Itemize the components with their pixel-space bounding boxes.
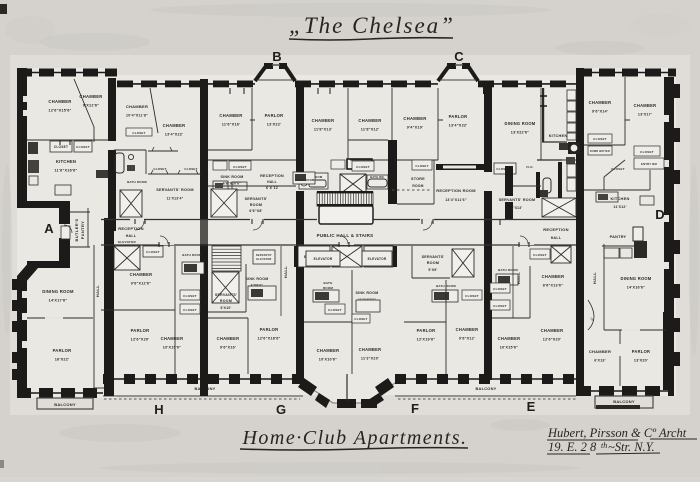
svg-text:SINK ROOM: SINK ROOM (355, 291, 378, 295)
svg-text:14'X16'6": 14'X16'6" (627, 286, 645, 290)
svg-text:13'4"X11'6": 13'4"X11'6" (445, 198, 467, 202)
svg-text:BATH ROOM: BATH ROOM (127, 180, 147, 184)
svg-text:ROOM: ROOM (250, 203, 262, 207)
svg-text:CHAMBER: CHAMBER (403, 116, 426, 121)
svg-text:CHAMBER: CHAMBER (79, 94, 102, 99)
svg-text:SINK ROOM: SINK ROOM (220, 175, 243, 179)
svg-text:6'X10': 6'X10' (220, 306, 231, 310)
svg-text:CHAMBER: CHAMBER (219, 113, 242, 118)
svg-text:CHAMBER: CHAMBER (217, 336, 240, 341)
svg-text:CLOSET: CLOSET (356, 165, 370, 169)
svg-text:12'6"X20': 12'6"X20' (543, 338, 561, 342)
svg-text:PARLOR: PARLOR (131, 328, 150, 333)
svg-text:CLOSET: CLOSET (54, 145, 68, 149)
svg-text:H: H (154, 402, 163, 417)
svg-text:HALL: HALL (126, 234, 137, 238)
svg-text:ROOM: ROOM (412, 184, 423, 188)
svg-text:CLOSET: CLOSET (493, 287, 507, 291)
svg-text:PANTRY: PANTRY (610, 235, 627, 239)
svg-text:12'6"X20': 12'6"X20' (131, 338, 150, 342)
svg-text:BATH: BATH (323, 281, 332, 285)
svg-text:7'X13': 7'X13' (512, 206, 523, 210)
svg-text:CHAMBER: CHAMBER (161, 336, 184, 341)
svg-text:CLOSET: CLOSET (146, 250, 160, 254)
svg-text:BALCONY: BALCONY (613, 399, 635, 404)
svg-text:CHAMBER: CHAMBER (589, 100, 612, 105)
svg-text:CHAMBER: CHAMBER (541, 328, 564, 333)
svg-text:ELEVATOR: ELEVATOR (118, 240, 136, 244)
svg-text:6 X 12: 6 X 12 (266, 186, 278, 190)
svg-text:12'6"X18'6": 12'6"X18'6" (257, 337, 280, 341)
svg-text:ROOM: ROOM (220, 299, 232, 303)
svg-text:CLOSET: CLOSET (593, 137, 607, 141)
svg-text:RECEPTION: RECEPTION (543, 227, 569, 232)
svg-text:13'X17': 13'X17' (638, 113, 652, 117)
svg-text:HALL: HALL (592, 272, 597, 284)
svg-text:5'X9': 5'X9' (428, 268, 437, 272)
svg-text:8'6"X13'6": 8'6"X13'6" (543, 284, 563, 288)
svg-text:KITCHEN: KITCHEN (56, 159, 76, 164)
svg-text:th: th (601, 441, 607, 450)
svg-text:ROOM: ROOM (323, 286, 334, 290)
svg-text:CHAMBER: CHAMBER (48, 99, 71, 104)
svg-text:9'X12'6": 9'X12'6" (83, 104, 99, 108)
svg-text:CHAMBER: CHAMBER (312, 118, 335, 123)
svg-text:BATH RM: BATH RM (370, 175, 384, 179)
svg-text:CHAMBER: CHAMBER (589, 349, 611, 354)
svg-text:19. E. 2 8: 19. E. 2 8 (548, 440, 597, 454)
svg-text:11'6"X16'6": 11'6"X16'6" (55, 169, 78, 173)
svg-text:13'X22'6": 13'X22'6" (511, 131, 529, 135)
svg-text:F: F (411, 401, 419, 416)
svg-text:6'6"X8': 6'6"X8' (249, 209, 262, 213)
svg-text:~Str. N.Y.: ~Str. N.Y. (608, 440, 655, 454)
svg-text:KITCHEN: KITCHEN (549, 134, 568, 138)
svg-text:11'X12': 11'X12' (613, 205, 626, 209)
svg-text:SERVANTS': SERVANTS' (256, 254, 272, 257)
svg-text:HALL: HALL (267, 180, 277, 184)
svg-text:HALL: HALL (95, 285, 100, 297)
svg-text:CHAMBER: CHAMBER (163, 123, 186, 128)
svg-text:CLOSET: CLOSET (328, 308, 342, 312)
svg-text:CLOSET: CLOSET (153, 167, 166, 171)
svg-text:CLOSET: CLOSET (611, 167, 625, 171)
svg-text:HALL: HALL (516, 272, 521, 284)
svg-text:CHAMBER: CHAMBER (359, 347, 382, 352)
svg-text:DINING ROOM: DINING ROOM (42, 289, 74, 294)
svg-text:13'4"X22': 13'4"X22' (449, 124, 468, 128)
svg-text:ENTRY RM: ENTRY RM (641, 162, 657, 166)
svg-text:9'6"X16': 9'6"X16' (220, 346, 236, 350)
svg-text:E: E (527, 399, 536, 414)
svg-text:DUMB WAITER: DUMB WAITER (590, 150, 610, 153)
svg-text:11'3"X20': 11'3"X20' (361, 357, 379, 361)
svg-text:CLOSET: CLOSET (465, 294, 479, 298)
svg-text:C: C (454, 49, 464, 64)
svg-text:DINING ROOM: DINING ROOM (505, 121, 536, 126)
svg-text:B: B (272, 49, 281, 64)
svg-text:SERVANTS': SERVANTS' (245, 197, 268, 201)
svg-text:CLOSET: CLOSET (76, 145, 90, 149)
svg-text:SERVANTS' ROOM: SERVANTS' ROOM (499, 198, 536, 202)
svg-text:9'6"X14': 9'6"X14' (592, 110, 608, 114)
svg-text:KITCHEN: KITCHEN (610, 196, 629, 201)
svg-text:12'6"X15'6": 12'6"X15'6" (48, 109, 71, 113)
svg-text:SERVANTS' ROOM: SERVANTS' ROOM (156, 188, 194, 192)
svg-text:CLOSET: CLOSET (533, 253, 547, 257)
svg-text:CLOSET: CLOSET (183, 308, 197, 312)
svg-text:ROOM: ROOM (427, 261, 439, 265)
svg-text:11'6"X16': 11'6"X16' (222, 123, 241, 127)
svg-text:BALCONY: BALCONY (54, 402, 76, 407)
svg-text:D: D (655, 207, 664, 222)
svg-text:CHAMBER: CHAMBER (542, 274, 565, 279)
svg-text:PARLOR: PARLOR (260, 327, 279, 332)
svg-text:PANTRY: PANTRY (80, 221, 85, 239)
svg-text:14'X17'6": 14'X17'6" (49, 299, 68, 303)
svg-text:„The Chelsea”: „The Chelsea” (289, 13, 455, 38)
svg-text:BALCONY: BALCONY (476, 386, 497, 391)
svg-text:A: A (44, 221, 54, 236)
svg-text:CLOSET: CLOSET (493, 304, 507, 308)
svg-text:10'X15'6": 10'X15'6" (500, 346, 518, 350)
svg-text:CLOSET: CLOSET (184, 167, 197, 171)
svg-text:FLO.: FLO. (526, 165, 533, 169)
svg-text:10'4"X11'8": 10'4"X11'8" (126, 114, 148, 118)
svg-text:PARLOR: PARLOR (632, 349, 650, 354)
svg-text:13'X22': 13'X22' (267, 123, 281, 127)
svg-text:16'X22': 16'X22' (55, 358, 69, 362)
svg-text:BUTLER'S: BUTLER'S (74, 218, 79, 241)
svg-text:PARLOR: PARLOR (53, 348, 72, 353)
svg-text:ELEVATOR: ELEVATOR (314, 257, 333, 261)
svg-text:11'X13'4": 11'X13'4" (166, 197, 183, 201)
svg-text:6'X13': 6'X13' (594, 359, 606, 363)
svg-text:11'8"X13': 11'8"X13' (314, 128, 332, 132)
svg-text:CLOSET: CLOSET (233, 165, 247, 169)
svg-text:CLOSET: CLOSET (183, 294, 197, 298)
svg-text:9'6"X12'6": 9'6"X12'6" (131, 282, 151, 286)
svg-text:13'4"X22': 13'4"X22' (165, 133, 183, 137)
svg-text:CLOSET: CLOSET (640, 150, 654, 154)
svg-text:HALL: HALL (551, 236, 562, 240)
svg-text:9'6"X12': 9'6"X12' (459, 337, 475, 341)
svg-text:PARLOR: PARLOR (417, 328, 436, 333)
svg-text:PUBLIC HALL & STAIRS: PUBLIC HALL & STAIRS (317, 233, 374, 238)
svg-text:PARLOR: PARLOR (265, 113, 284, 118)
svg-text:CHAMBER: CHAMBER (634, 103, 657, 108)
svg-text:SERVANTS': SERVANTS' (422, 255, 445, 259)
svg-text:CHAMBER: CHAMBER (317, 348, 340, 353)
svg-text:10'X15'6": 10'X15'6" (163, 346, 181, 350)
svg-text:11'8"X12': 11'8"X12' (361, 128, 380, 132)
svg-text:CHAMBER: CHAMBER (358, 118, 381, 123)
svg-text:CLOSET: CLOSET (132, 131, 145, 135)
svg-text:CHAMBER: CHAMBER (130, 272, 153, 277)
svg-text:10'X10'6": 10'X10'6" (319, 358, 337, 362)
svg-text:DINING ROOM: DINING ROOM (621, 276, 652, 281)
svg-text:BATH ROOM: BATH ROOM (295, 178, 315, 182)
svg-text:SERVANTS': SERVANTS' (215, 293, 237, 297)
svg-text:RECEPTION: RECEPTION (260, 174, 284, 178)
svg-text:BATH ROOM: BATH ROOM (182, 253, 202, 257)
svg-text:G: G (276, 402, 286, 417)
svg-text:PARLOR: PARLOR (449, 114, 468, 119)
svg-text:9'4"X19': 9'4"X19' (407, 126, 423, 130)
svg-text:Hubert, Pirsson & Cº Archt: Hubert, Pirsson & Cº Archt (547, 426, 687, 440)
svg-text:CLOSET: CLOSET (415, 164, 428, 168)
svg-text:13'X20': 13'X20' (634, 359, 648, 363)
svg-text:BATH ROOM: BATH ROOM (498, 268, 518, 272)
svg-text:CHAMBER: CHAMBER (498, 336, 521, 341)
svg-text:HALL: HALL (283, 266, 288, 278)
svg-text:CHAMBER: CHAMBER (126, 104, 148, 109)
svg-text:SINK ROOM: SINK ROOM (245, 277, 268, 281)
svg-text:ELEVATOR: ELEVATOR (368, 257, 387, 261)
svg-text:ELEVATOR: ELEVATOR (256, 258, 271, 261)
svg-text:CLOSET: CLOSET (354, 317, 367, 321)
svg-text:RECEPTION ROOM: RECEPTION ROOM (436, 188, 475, 193)
svg-text:12'X19'6": 12'X19'6" (417, 338, 436, 342)
svg-text:CHAMBER: CHAMBER (456, 327, 479, 332)
svg-text:STORE: STORE (411, 177, 425, 181)
svg-text:Home·Club Apartments.: Home·Club Apartments. (241, 427, 467, 449)
